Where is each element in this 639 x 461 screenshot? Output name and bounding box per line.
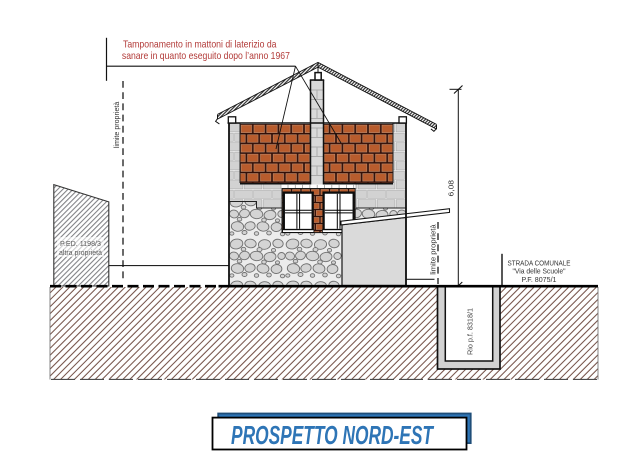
svg-text:P.F. 8075/1: P.F. 8075/1: [522, 275, 557, 284]
svg-text:limite proprietà: limite proprietà: [112, 102, 121, 149]
svg-text:P.ED. 1198/3: P.ED. 1198/3: [60, 241, 101, 248]
svg-text:sanare in quanto eseguito dopo: sanare in quanto eseguito dopo l’anno 19…: [122, 51, 290, 62]
svg-text:Rio p.f. 8318/1: Rio p.f. 8318/1: [466, 308, 475, 355]
svg-text:6,08: 6,08: [447, 180, 456, 197]
svg-text:limite proprietà: limite proprietà: [429, 224, 438, 275]
svg-text:PROSPETTO NORD-EST: PROSPETTO NORD-EST: [231, 420, 434, 450]
svg-text:altra proprietà: altra proprietà: [59, 250, 102, 257]
svg-text:Tamponamento in mattoni di lat: Tamponamento in mattoni di laterizio da: [123, 39, 277, 50]
